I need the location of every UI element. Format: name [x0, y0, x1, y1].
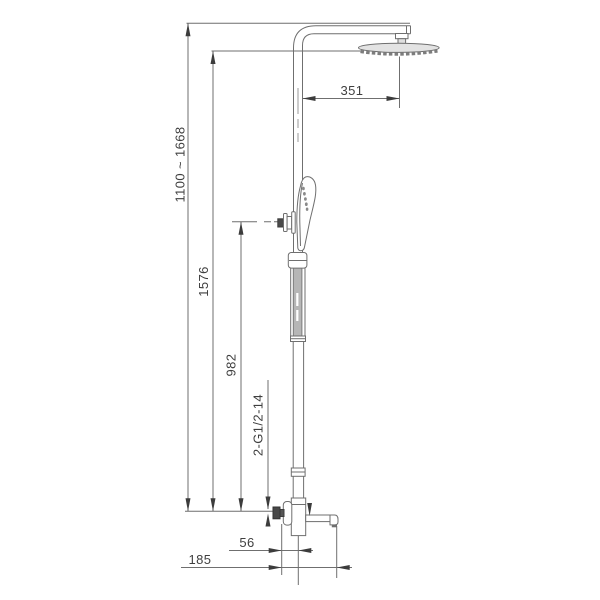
label-height-range: 1100 ~ 1668	[172, 126, 187, 202]
arrow-left-spout-reach	[337, 565, 350, 570]
horizontal-dimension-arrows	[269, 96, 400, 570]
arrow-left-arm-reach	[303, 96, 316, 101]
shower-column-drawing: 1100 ~ 1668 1576 982 2-G1/2-14 351 56 18…	[0, 0, 600, 600]
technical-drawing-page: 1100 ~ 1668 1576 982 2-G1/2-14 351 56 18…	[0, 0, 600, 600]
handle-flange	[283, 502, 292, 526]
label-spout-reach: 185	[189, 552, 212, 567]
arrow-up-hand-shower	[239, 222, 244, 235]
label-spout-offset: 56	[239, 535, 254, 550]
arrow-down-height-range	[186, 498, 191, 511]
label-total-height: 1576	[196, 266, 211, 297]
overhead-shower-disc	[359, 43, 440, 52]
handle-knob	[273, 507, 280, 519]
arrow-down-total-height	[211, 498, 216, 511]
label-hand-shower-height: 982	[223, 354, 238, 377]
holder-flange-2	[287, 217, 292, 230]
arrow-down-thread	[266, 497, 271, 510]
label-arm-reach: 351	[341, 83, 364, 98]
arm-and-pipe-outer-edge	[294, 26, 411, 253]
mixer-body	[291, 498, 305, 536]
spout-end-cap	[330, 515, 338, 525]
hand-shower-group	[278, 177, 316, 268]
arrow-right-spout-offset	[269, 548, 282, 553]
holder-flange-1	[284, 214, 288, 232]
spout	[306, 515, 331, 522]
arrow-up-thread	[266, 514, 271, 527]
arrow-up-total-height	[211, 51, 216, 64]
arrow-right-spout-reach	[269, 565, 282, 570]
arrow-right-arm-reach	[387, 96, 400, 101]
arrow-left-spout-offset	[298, 548, 311, 553]
mixer-group	[273, 498, 338, 536]
arm-and-pipe-inner-edge	[303, 34, 411, 253]
holder-knob	[278, 219, 284, 227]
spout-nozzle	[332, 525, 337, 528]
slide-tube-highlight-2	[296, 310, 298, 321]
handle-stem	[280, 510, 284, 517]
outlet-pointer-arrow	[307, 503, 312, 516]
label-thread-spec: 2-G1/2-14	[250, 394, 265, 456]
arrow-down-hand-shower	[239, 498, 244, 511]
holder-flange-3	[292, 212, 296, 234]
arrow-up-height-range	[186, 23, 191, 36]
ball-joint-nut	[396, 34, 409, 39]
slide-tube-highlight-1	[296, 293, 298, 306]
